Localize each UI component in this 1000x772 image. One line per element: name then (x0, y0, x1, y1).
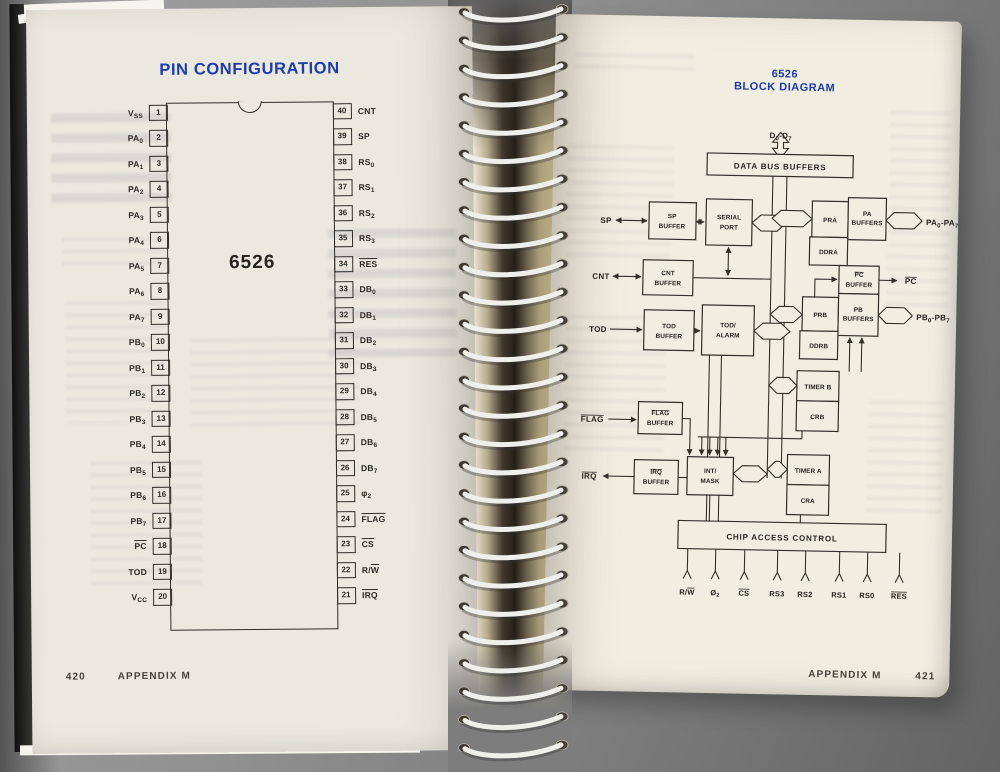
svg-text:PC: PC (854, 272, 863, 279)
pa-port-arrow (886, 212, 922, 229)
pin-row-38: RS038 (27, 153, 473, 173)
crb-box: CRB (796, 401, 839, 432)
svg-text:BUFFER: BUFFER (846, 282, 873, 290)
signal-label: RS2 (797, 590, 812, 599)
right-footer: APPENDIX M 421 (808, 669, 935, 682)
pin-row-22: R/W22 (31, 561, 477, 581)
pin-row-25: φ225 (30, 484, 476, 504)
pin-label: RS2 (359, 204, 431, 225)
pin-number-box: 34 (334, 256, 353, 273)
left-footer: 420 APPENDIX M (66, 671, 191, 683)
pin-label: RS3 (359, 229, 431, 250)
pin-row-24: FLAG24 (30, 510, 476, 530)
svg-text:INT/: INT/ (704, 468, 717, 475)
pin-number-box: 29 (335, 383, 354, 400)
serial-port-box: SERIAL PORT (706, 199, 753, 246)
tod-buffer-box: TOD BUFFER (644, 310, 695, 351)
tod-pin-label: TOD (589, 325, 607, 334)
pin-label: RS0 (358, 153, 430, 174)
section-label: APPENDIX M (808, 669, 881, 681)
pin-label: CS (362, 535, 434, 552)
pb-port-arrow (878, 307, 912, 324)
svg-text:PA: PA (863, 211, 872, 218)
svg-text:PORT: PORT (720, 224, 738, 231)
svg-text:BUFFER: BUFFER (655, 280, 682, 288)
pin-number-box: 36 (333, 205, 352, 222)
signal-label: RES (891, 592, 907, 601)
pin-row-32: DB132 (29, 306, 475, 326)
pin-number-box: 40 (332, 103, 351, 120)
sp-buffer-box: SP BUFFER (649, 202, 697, 240)
pin-number-box: 24 (336, 511, 355, 528)
svg-text:CRB: CRB (810, 414, 825, 421)
cra-box: CRA (786, 485, 829, 516)
signal-label: Ø2 (710, 588, 720, 599)
pa-range-label: PA0-PA7 (926, 218, 959, 230)
pin-number-box: 35 (333, 230, 352, 247)
pin-number-box: 33 (334, 281, 353, 298)
signal-stub (740, 550, 749, 580)
pin-number-box: 22 (336, 562, 355, 579)
pin-number-box: 26 (335, 460, 354, 477)
pin-row-36: RS236 (28, 204, 474, 224)
pin-label: DB5 (360, 408, 432, 429)
pin-label: RES (359, 255, 431, 272)
svg-text:SERIAL: SERIAL (717, 214, 741, 221)
pin-row-31: DB231 (29, 331, 475, 351)
flag-buffer-box: FLAG BUFFER (638, 402, 683, 435)
pa-buffers-box: PA BUFFERS (848, 198, 887, 241)
svg-text:PB: PB (854, 307, 863, 314)
pc-buffer-box: PC BUFFER (839, 265, 880, 294)
int-mask-box: INT/ MASK (687, 457, 734, 496)
svg-text:DDRB: DDRB (809, 343, 828, 350)
irq-buffer-box: IRQ BUFFER (634, 460, 679, 495)
pc-pin-label: PC (905, 277, 917, 286)
signal-stub (683, 549, 692, 579)
timer-b-box: TIMER B (797, 371, 840, 402)
signal-label: RS3 (769, 589, 784, 598)
right-page: 6526 BLOCK DIAGRAM (543, 14, 962, 698)
section-label: APPENDIX M (118, 671, 191, 683)
ddrb-box: DDRB (799, 331, 838, 360)
pin-label: DB3 (360, 357, 432, 378)
svg-text:CNT: CNT (661, 270, 675, 277)
pin-row-37: RS137 (28, 178, 474, 198)
pin-number-box: 30 (335, 358, 354, 375)
chip-access-signals: R/WØ2CSRS3RS2RS1RS0RES (679, 548, 908, 602)
pin-label: SP (358, 127, 430, 144)
pin-row-40: CNT40 (27, 102, 473, 122)
signal-stub (773, 550, 782, 580)
pin-row-23: CS23 (31, 535, 477, 555)
pin-number-box: 39 (333, 128, 352, 145)
svg-text:TOD: TOD (662, 323, 676, 330)
block-diagram: DATA BUS BUFFERS SP BUFFER SERIAL PORT C… (554, 114, 960, 622)
pin-label: R/W (362, 561, 434, 578)
svg-text:BUFFERS: BUFFERS (852, 220, 884, 228)
svg-text:BUFFER: BUFFER (656, 333, 683, 341)
pin-label: IRQ (362, 586, 434, 603)
svg-text:TIMER A: TIMER A (795, 468, 822, 476)
pin-number-box: 21 (337, 587, 356, 604)
signal-stub (895, 553, 904, 583)
pin-label: DB0 (359, 280, 431, 301)
chip-access-control-box: CHIP ACCESS CONTROL (678, 520, 886, 552)
page-number: 421 (915, 671, 935, 682)
pin-row-21: IRQ21 (31, 586, 477, 606)
pin-number-box: 32 (334, 307, 353, 324)
signal-stub (711, 549, 720, 579)
signal-stub (835, 551, 844, 581)
sp-pin-label: SP (600, 216, 612, 225)
left-page: PIN CONFIGURATION 6526 VSS1PA02PA13PA24P… (26, 6, 478, 754)
data-bus-buffers-box: DATA BUS BUFFERS (707, 153, 853, 178)
signal-label: RS0 (859, 591, 874, 600)
svg-text:CRA: CRA (801, 498, 816, 505)
pin-label: CNT (358, 102, 430, 119)
pin-row-28: DB528 (30, 408, 476, 428)
pin-number-box: 25 (336, 485, 355, 502)
page-number: 420 (66, 672, 86, 683)
timer-a-box: TIMER A (787, 455, 830, 486)
pin-number-box: 37 (333, 179, 352, 196)
svg-text:TOD/: TOD/ (720, 322, 736, 329)
svg-text:DATA BUS BUFFERS: DATA BUS BUFFERS (734, 161, 827, 172)
pin-row-29: DB429 (29, 382, 475, 402)
pin-number-box: 23 (336, 536, 355, 553)
pin-label: DB4 (360, 382, 432, 403)
signal-label: CS (738, 589, 749, 598)
pin-row-30: DB330 (29, 357, 475, 377)
svg-text:BUFFER: BUFFER (643, 479, 670, 487)
ddra-box: DDRA (809, 237, 848, 266)
pin-label: DB7 (361, 459, 433, 480)
svg-text:BUFFER: BUFFER (659, 223, 686, 231)
svg-text:PRB: PRB (813, 312, 827, 319)
diagram-title: 6526 BLOCK DIAGRAM (595, 65, 975, 98)
pin-row-26: DB726 (30, 459, 476, 479)
pin-column-right: CNT40SP39RS038RS137RS236RS335RES34DB033D… (26, 6, 478, 754)
pin-row-27: DB627 (30, 433, 476, 453)
svg-text:PRA: PRA (823, 217, 837, 224)
pin-number-box: 28 (335, 409, 354, 426)
pb-range-label: PB0-PB7 (916, 313, 950, 325)
pin-label: DB2 (360, 331, 432, 352)
prb-box: PRB (802, 297, 839, 332)
svg-text:BUFFER: BUFFER (647, 420, 674, 428)
svg-text:FLAG: FLAG (651, 410, 669, 417)
signal-label: R/W (679, 587, 695, 596)
flag-pin-label: FLAG (581, 415, 604, 424)
irq-pin-label: IRQ (581, 472, 596, 481)
pin-row-39: SP39 (27, 127, 473, 147)
pin-number-box: 31 (334, 332, 353, 349)
signal-label: RS1 (831, 590, 846, 599)
pin-row-34: RES34 (28, 255, 474, 275)
tod-alarm-box: TOD/ ALARM (701, 305, 754, 356)
pin-row-33: DB033 (28, 280, 474, 300)
svg-text:DDRA: DDRA (819, 249, 838, 256)
signal-stub (863, 552, 872, 582)
spine-bottom-shadow (448, 640, 572, 772)
svg-text:SP: SP (668, 213, 677, 220)
pin-label: DB6 (361, 433, 433, 454)
svg-text:BUFFERS: BUFFERS (843, 316, 875, 324)
book-photo: PIN CONFIGURATION 6526 VSS1PA02PA13PA24P… (0, 0, 1000, 772)
signal-stub (801, 551, 810, 581)
pin-row-35: RS335 (28, 229, 474, 249)
svg-text:ALARM: ALARM (716, 332, 740, 339)
pin-number-box: 27 (335, 434, 354, 451)
cnt-pin-label: CNT (592, 272, 610, 281)
pin-label: FLAG (361, 510, 433, 527)
svg-text:TIMER B: TIMER B (804, 384, 831, 392)
pin-label: RS1 (358, 178, 430, 199)
pin-label: DB1 (360, 306, 432, 327)
pin-label: φ2 (361, 484, 433, 505)
cnt-buffer-box: CNT BUFFER (643, 260, 694, 296)
pin-number-box: 38 (333, 154, 352, 171)
pb-buffers-box: PB BUFFERS (838, 293, 879, 336)
svg-text:IRQ: IRQ (650, 469, 662, 476)
pra-box: PRA (812, 201, 849, 238)
svg-text:MASK: MASK (700, 478, 720, 485)
